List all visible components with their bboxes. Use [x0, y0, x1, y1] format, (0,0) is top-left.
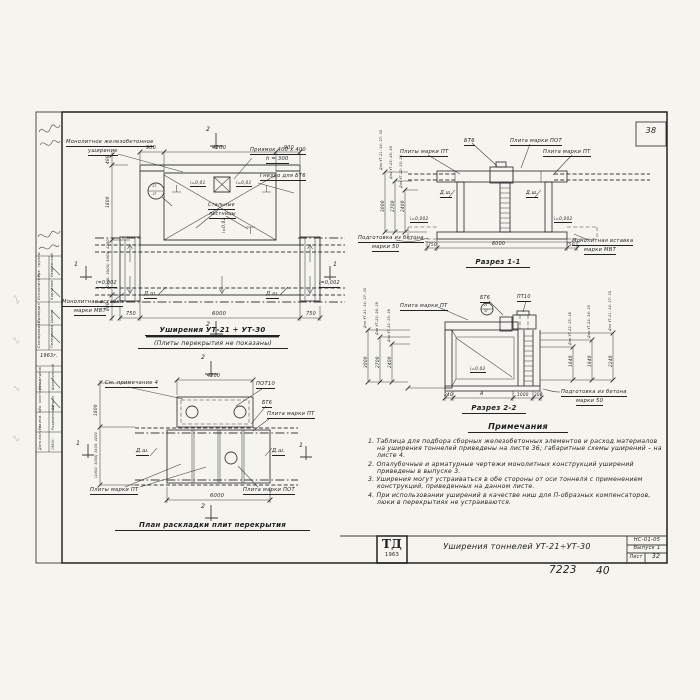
sp-title: План раскладки плит перекрытия — [115, 522, 310, 531]
plan-section-mark-1-left: 1 — [74, 262, 78, 269]
plan-slope-left: i=0,01 — [190, 181, 206, 187]
s2-title: Разрез 2-2 — [462, 405, 526, 414]
s2-callout-pt10: ПТ10 — [517, 295, 531, 302]
s1-callout-prep: Подготовка из бетона — [358, 236, 424, 243]
s2-dim-bottom-3: 1000 — [517, 393, 529, 397]
note-item-1: 1. Таблица для подбора сборных железобет… — [368, 438, 662, 459]
notes-list: 1. Таблица для подбора сборных железобет… — [368, 438, 662, 507]
note-item-2: 2. Опалубочные и арматурные чертежи моно… — [368, 461, 662, 475]
sheet-word: Лист — [627, 555, 645, 560]
s2-dim-right-value-0: 1640 — [569, 355, 573, 367]
notes-title: Примечания — [468, 423, 568, 433]
logo-td: ТД — [379, 538, 405, 551]
s1-dim-bottom-3: 750 — [566, 243, 575, 247]
stamp-b-name-0: Шаполянский — [52, 364, 55, 390]
stamp-b-name-3: 1963г. — [52, 438, 55, 450]
plan-dim-left-4: 800 — [106, 302, 110, 311]
s2-dim-left-label-2: Для УТ-22; 25; 28 — [388, 309, 391, 342]
drawing-linework — [0, 0, 700, 700]
s2-dim-left-value-2: 2400 — [388, 356, 392, 368]
plan-circle-mark-top: 2Г — [153, 185, 157, 188]
s1-callout-insert-2: марки МВТ — [584, 248, 616, 255]
plan-slope-mid: i=0,02 — [222, 218, 226, 234]
plan-section-mark-1-right: 1 — [333, 262, 337, 269]
plan-dim-left-2: 1800 — [106, 196, 110, 208]
plan-slope-edge-right: i=0,002 — [319, 281, 340, 288]
s2-dim-bottom-2: А — [480, 392, 484, 397]
s2-dim-left-value-1: 2700 — [376, 356, 380, 368]
sp-callout-pt: Плита марки ПТ — [267, 412, 315, 419]
s2-callout-prep: Подготовка из бетона — [561, 390, 627, 397]
s2-circle-mark-bottom: 3Г — [484, 310, 488, 313]
sp-callout-pot: Плита марки ПОТ — [243, 488, 295, 495]
issue-label: Выпуск 1 — [628, 546, 666, 551]
s1-callout-insert: Монолитная вставка — [572, 239, 633, 246]
s2-dim-right-label-2: Для УТ-21; 24; 27; 30 — [609, 291, 612, 331]
s1-callout-pot: Плита марки ПОТ — [510, 139, 562, 146]
plan-slope-right: i=0,01 — [236, 181, 252, 187]
s1-title: Разрез 1-1 — [466, 259, 530, 268]
sheet-title: Уширения тоннелей УТ-21÷УТ-30 — [410, 543, 624, 551]
plan-axis-right: Д.ш. — [266, 292, 279, 299]
sp-callout-bt6: БТ6 — [262, 401, 272, 408]
sp-section-mark-2-bottom: 2 — [201, 504, 205, 511]
plan-callout-insert: Монолитная вставка — [62, 300, 123, 307]
plan-callout-socket: Гнездо для БТ6 — [260, 174, 306, 181]
sp-section-mark-1-left: 1 — [76, 441, 80, 448]
s2-slope: i=0,02 — [470, 367, 486, 373]
plan-dim-left-1: 400 — [106, 155, 110, 164]
sp-dim-left: 1800 — [94, 404, 98, 416]
s1-dim-left-label-0: Для УТ-21; 24; 27; 30 — [380, 130, 383, 170]
s2-callout-bt6: БТ6 — [480, 296, 490, 303]
stamp-name-1: Корнилов — [51, 280, 55, 300]
drawing-sheet: 38 ТД 1963 Уширения тоннелей УТ-21÷УТ-30… — [0, 0, 700, 700]
logo-year: 1963 — [379, 553, 405, 558]
plan-title: Уширения УТ-21 ÷ УТ-30 — [145, 327, 280, 336]
s1-dim-bottom-1: 750 — [428, 243, 437, 247]
sp-callout-note: См. примечание 4 — [105, 381, 158, 388]
sp-axis-right: Д.ш. — [272, 449, 285, 456]
s2-dim-right-value-2: 2240 — [609, 355, 613, 367]
plan-dim-bottom-1: 750 — [126, 312, 136, 317]
sp-dim-bottom: 6000 — [210, 494, 224, 499]
doc-code: НС-01-05 — [628, 538, 666, 543]
plan-section-mark-2-top: 2 — [206, 127, 210, 134]
s1-slope-right: i=0,002 — [554, 217, 572, 223]
plan-callout-monolithic-2: уширение — [88, 149, 118, 156]
plan-dim-bottom-2: 6000 — [212, 312, 226, 317]
s2-callout-prep-2: марки 50 — [576, 399, 603, 406]
stamp-role-1: Исполнитель — [38, 273, 42, 300]
sp-callout-pot10: ПОТ10 — [256, 382, 275, 389]
stamp-name-2: Цыпин — [51, 309, 55, 323]
plan-subtitle: (Плиты перекрытия не показаны) — [138, 341, 288, 349]
sheet-number: 32 — [646, 554, 666, 561]
note-item-3: 3. Уширения могут устраиваться в обе сто… — [368, 476, 662, 490]
plan-callout-insert-2: марки МВТ — [74, 309, 106, 316]
s1-axis-left: Д.ш. — [440, 191, 452, 198]
stamp-year: 1963г. — [37, 354, 61, 359]
section-2-2-lines — [366, 301, 616, 401]
s1-callout-bt6: БТ6 — [464, 139, 475, 146]
plan-dim-top-1: 900 — [146, 146, 156, 151]
s1-callout-pt-right: Плита марки ПТ — [543, 150, 591, 157]
sp-dim-left-rot: (2400; 3000) 3400; 4200 — [95, 432, 98, 478]
footer-number-right: 40 — [596, 566, 610, 577]
plan-dim-top-2: 4200 — [212, 146, 226, 151]
s1-dim-left-value-1: 2700 — [391, 200, 395, 212]
s1-dim-left-label-1: Для УТ-23; 26; 29 — [390, 146, 393, 179]
stamp-name-0: Уваровский — [51, 253, 55, 277]
s2-circle-mark-top: 2Г — [484, 304, 488, 307]
stamp-role-3: Скопировала — [38, 321, 42, 348]
s2-dim-bottom-1: 240 — [444, 393, 453, 397]
plan-callout-pit: Приямок 400 х 400 — [250, 148, 306, 155]
note-item-4: 4. При использовании уширений в качестве… — [368, 492, 662, 506]
plan-callout-ladders: Стальные — [208, 203, 235, 210]
s1-callout-prep-2: марки 50 — [372, 245, 399, 252]
stamp-b-role-1: Гл. конструктор — [39, 379, 42, 410]
s2-callout-pt: Плита марки ПТ — [400, 304, 448, 311]
sp-dim-top: 4200 — [207, 374, 220, 379]
s1-callout-pt-left: Плиты марки ПТ — [400, 150, 448, 157]
stamp-name-3: Полежаева — [51, 325, 55, 348]
stamp-b-name-2: Родименский — [52, 405, 55, 430]
s2-dim-left-value-0: 3000 — [364, 356, 368, 368]
stamp-b-role-3: Дата выпуска — [39, 424, 42, 450]
s1-dim-left-value-2: 2400 — [401, 200, 405, 212]
sp-callout-pts: Плиты марки ПТ — [90, 488, 138, 495]
s1-axis-right: Д.ш. — [526, 191, 538, 198]
stamp-role-2: Проверил — [38, 303, 42, 323]
s2-dim-bottom-4: 300 — [534, 393, 543, 397]
s2-dim-left-label-1: Для УТ-23; 26; 29 — [376, 302, 379, 335]
s1-dim-left-label-2: Для УТ-22; 25; 28 — [400, 155, 403, 188]
plan-dim-bottom-3: 750 — [306, 312, 316, 317]
footer-number-left: 7223 — [549, 565, 577, 576]
plan-circle-mark-bottom: 3Г — [153, 193, 157, 196]
s2-dim-right-label-0: Для УТ-22; 25; 28 — [569, 312, 572, 345]
plan-callout-pit-2: h = 300 — [266, 157, 289, 164]
sp-axis-left: Д.ш. — [136, 449, 149, 456]
s1-dim-left-value-0: 3000 — [381, 200, 385, 212]
s2-dim-left-label-0: Для УТ-21; 24; 27; 30 — [364, 288, 367, 328]
sp-section-mark-1-right: 1 — [299, 443, 303, 450]
plan-callout-monolithic: Монолитное железобетонное — [66, 140, 154, 147]
s1-slope-left: i=0,002 — [410, 217, 428, 223]
s2-dim-right-value-1: 1940 — [588, 355, 592, 367]
s1-dim-bottom-2: 6000 — [492, 242, 505, 247]
plan-axis-left: Д.ш. — [144, 292, 157, 299]
plan-dim-left-3: (2400; 3000) 3400; 4200 — [107, 239, 111, 289]
sp-section-mark-2-top: 2 — [201, 355, 205, 362]
s2-dim-right-label-1: Для УТ-23; 26; 29 — [588, 305, 591, 338]
sheet-corner-number: 38 — [636, 127, 666, 135]
